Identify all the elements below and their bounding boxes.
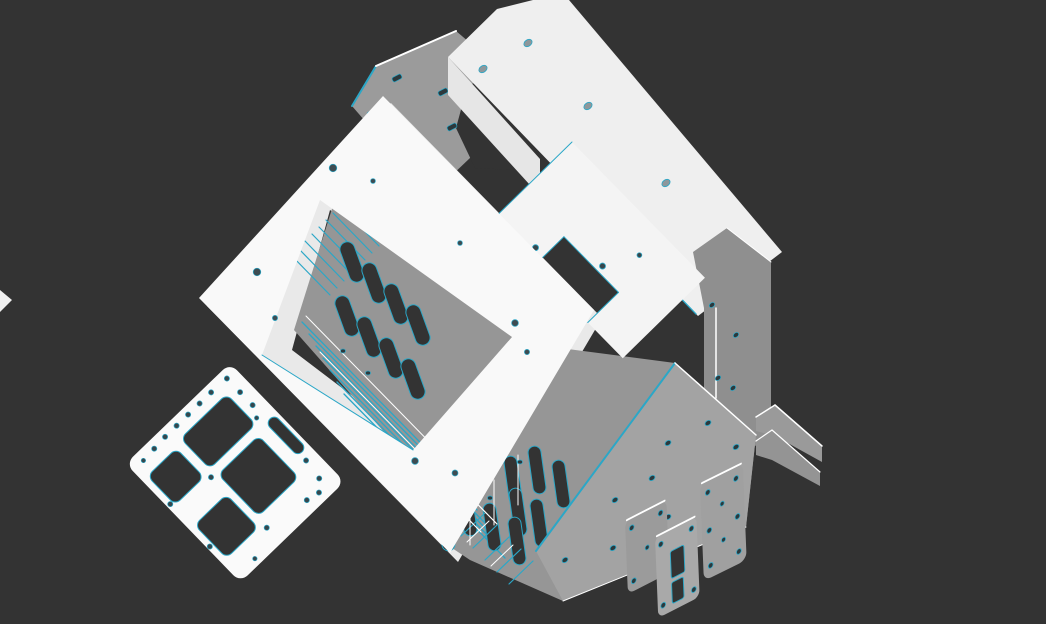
- hole: [458, 241, 463, 246]
- hole: [253, 268, 261, 276]
- part-bracket-arm[interactable]: [756, 405, 822, 486]
- hole: [272, 315, 277, 320]
- hole: [488, 496, 493, 500]
- panel-face: [0, 290, 12, 312]
- hole: [371, 179, 376, 184]
- hole: [518, 460, 523, 464]
- hole: [524, 349, 529, 354]
- cad-3d-viewport[interactable]: [0, 0, 1046, 624]
- hole: [341, 349, 346, 353]
- exploded-assembly-canvas[interactable]: [0, 0, 1046, 624]
- part-clipped-sliver[interactable]: [0, 290, 12, 312]
- part-mounting-plate-a[interactable]: [700, 463, 747, 581]
- hole: [366, 371, 371, 375]
- hole: [412, 458, 419, 465]
- hole: [512, 320, 519, 327]
- hole: [329, 164, 337, 172]
- hole: [452, 470, 458, 476]
